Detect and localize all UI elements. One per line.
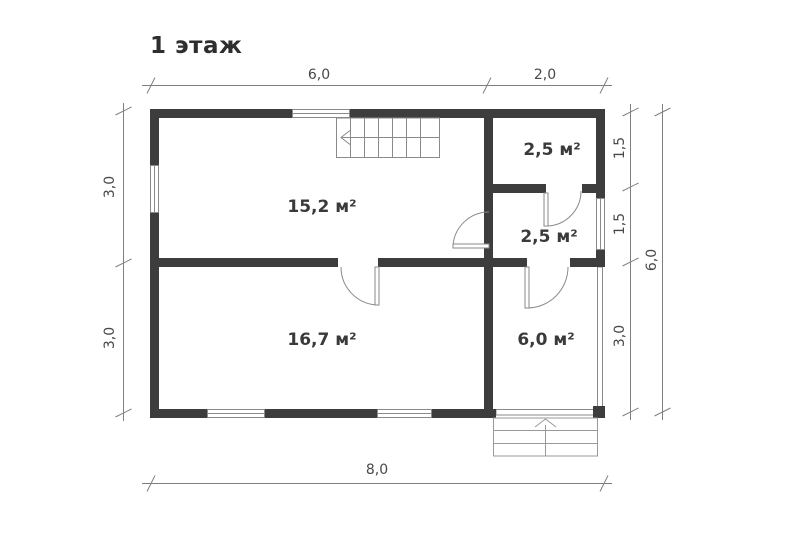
dimension-right-segment-1: 1,5 — [611, 126, 629, 170]
doors — [341, 191, 581, 308]
dimension-left-segment-2: 3,0 — [101, 316, 119, 360]
door-living-bedroom — [341, 267, 379, 305]
door-closet-hallway — [544, 191, 581, 226]
door-hallway-veranda — [525, 267, 568, 308]
room-label-hallway: 2,5 м² — [504, 225, 594, 249]
stairs — [337, 118, 440, 158]
dimension-line-left — [116, 103, 132, 421]
dimension-right-segment-3: 3,0 — [611, 314, 629, 358]
dimension-left-segment-1: 3,0 — [101, 165, 119, 209]
plan-title: 1 этаж — [150, 33, 242, 59]
room-label-living: 15,2 м² — [277, 195, 367, 219]
porch-steps — [494, 418, 598, 456]
dimension-top-segment-1: 6,0 — [289, 66, 349, 84]
dimension-right-total: 6,0 — [643, 238, 661, 282]
door-living-hallway — [453, 212, 489, 248]
room-label-closet: 2,5 м² — [507, 138, 597, 162]
floor-plan-drawing — [0, 0, 800, 533]
dimension-right-segment-2: 1,5 — [611, 202, 629, 246]
dimension-bottom-total: 8,0 — [347, 461, 407, 479]
dimension-top-segment-2: 2,0 — [515, 66, 575, 84]
room-label-bedroom: 16,7 м² — [277, 328, 367, 352]
room-label-veranda: 6,0 м² — [501, 328, 591, 352]
floor-plan-canvas: 1 этаж 15,2 м² 2,5 м² 2,5 м² 16,7 м² 6,0… — [0, 0, 800, 533]
